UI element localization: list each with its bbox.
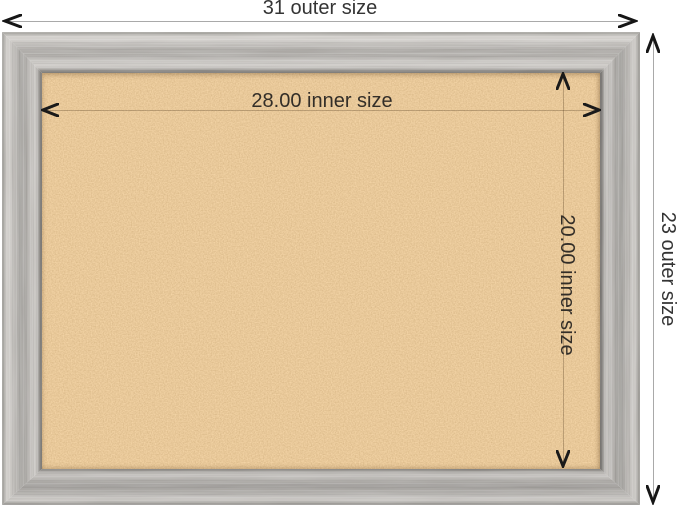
outer-height-label: 23 outer size: [657, 212, 678, 327]
chevron-up-icon: [556, 72, 570, 90]
outer-width-label: 31 outer size: [263, 0, 378, 19]
chevron-down-icon: [556, 450, 570, 468]
product-dimension-image: 31 outer size 23 outer size 28.00 inner …: [0, 0, 679, 511]
chevron-up-icon: [646, 33, 660, 53]
cork-board-surface: [42, 73, 600, 469]
cork-inner-shadow: [42, 73, 600, 469]
outer-width-line: [4, 21, 636, 22]
chevron-left-icon: [41, 103, 59, 117]
chevron-down-icon: [646, 485, 660, 505]
chevron-right-icon: [583, 103, 601, 117]
inner-height-label: 20.00 inner size: [556, 214, 577, 355]
chevron-right-icon: [618, 14, 638, 28]
outer-height-line: [653, 37, 654, 497]
inner-width-label: 28.00 inner size: [251, 91, 392, 112]
chevron-left-icon: [2, 14, 22, 28]
